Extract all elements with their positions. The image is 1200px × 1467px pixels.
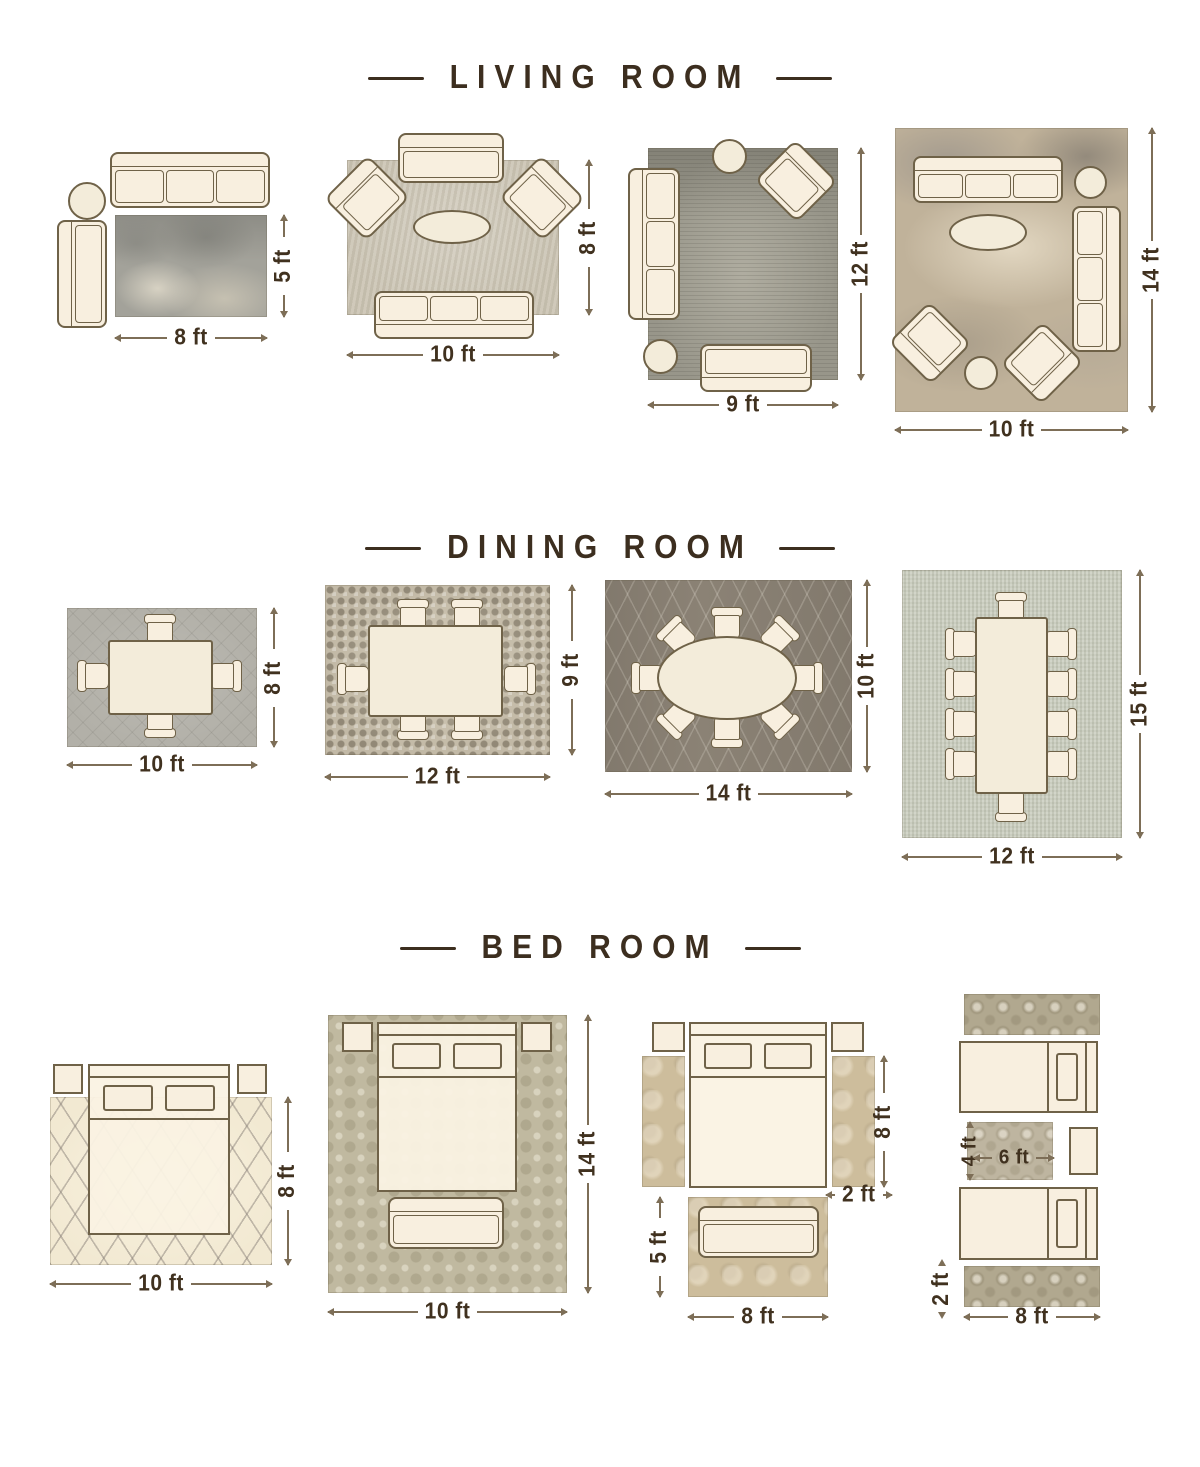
dimension-label: 9 ft <box>726 392 760 418</box>
dimension-label: 2 ft <box>929 1272 955 1306</box>
height-dimension: 10 ft <box>855 580 879 772</box>
ottoman <box>643 339 678 374</box>
sofa-cushion <box>480 296 529 321</box>
sofa-cushion <box>646 173 675 219</box>
loveseat <box>398 133 504 183</box>
headboard <box>90 1066 228 1078</box>
sofa-back <box>112 154 268 167</box>
sofa-cushion <box>965 174 1010 198</box>
pillow <box>103 1085 153 1111</box>
dining-chair <box>945 667 977 701</box>
sofa-cushion <box>430 296 479 321</box>
dimension-label: 8 ft <box>261 661 287 695</box>
height-dimension: 12 ft <box>849 148 873 380</box>
bed <box>689 1022 827 1188</box>
foot-rug-height-dimension: 5 ft <box>648 1197 672 1297</box>
dimension-label: 8 ft <box>741 1304 775 1330</box>
sofa-cushion <box>1077 257 1103 301</box>
mattress <box>961 1189 1049 1258</box>
loveseat <box>700 344 812 392</box>
runner-width-dimension: 8 ft <box>964 1305 1100 1329</box>
dimension-label: 8 ft <box>871 1105 897 1139</box>
dimension-label: 10 ft <box>425 1299 471 1325</box>
sofa-back <box>630 170 643 318</box>
height-dimension: 8 ft <box>262 608 286 747</box>
runner-length-dimension: 8 ft <box>872 1056 896 1187</box>
nightstand <box>652 1022 685 1052</box>
height-dimension: 8 ft <box>276 1097 300 1265</box>
nightstand <box>342 1022 373 1052</box>
section-title-text: DINING ROOM <box>447 529 753 567</box>
height-dimension: 14 ft <box>576 1015 600 1293</box>
sofa-cushion <box>705 349 807 374</box>
dimension-label: 15 ft <box>1127 681 1153 727</box>
rug-size-guide: LIVING ROOM 8 ft 5 ft <box>0 0 1200 1467</box>
dimension-label: 8 ft <box>275 1164 301 1198</box>
runner-rug <box>964 994 1100 1035</box>
dimension-label: 14 ft <box>1139 247 1165 293</box>
sofa-back <box>400 135 502 148</box>
dining-chair <box>1045 707 1077 741</box>
width-dimension: 9 ft <box>648 393 838 417</box>
pillow <box>1056 1053 1078 1102</box>
section-title-living-room: LIVING ROOM <box>0 58 1200 98</box>
round-side-table <box>68 182 106 220</box>
runner-rug <box>832 1056 875 1187</box>
sofa-back <box>1106 208 1119 350</box>
dining-chair <box>337 662 369 696</box>
dimension-label: 10 ft <box>854 653 880 699</box>
dimension-label: 10 ft <box>138 1271 184 1297</box>
sofa-3-seat <box>374 291 534 339</box>
ottoman <box>964 356 998 390</box>
oval-dining-table <box>657 636 797 720</box>
dining-chair <box>710 607 744 639</box>
area-rug <box>115 215 267 317</box>
title-dash <box>745 947 801 950</box>
oval-coffee-table <box>413 210 491 244</box>
dining-chair <box>710 716 744 748</box>
dimension-label: 9 ft <box>559 653 585 687</box>
headboard <box>1087 1043 1096 1111</box>
dimension-label: 8 ft <box>174 325 208 351</box>
round-side-table <box>1074 166 1107 199</box>
width-dimension: 10 ft <box>895 418 1128 442</box>
nightstand <box>831 1022 864 1052</box>
height-dimension: 5 ft <box>272 215 296 317</box>
section-title-text: BED ROOM <box>482 929 719 967</box>
title-dash <box>368 77 424 80</box>
height-dimension: 9 ft <box>560 585 584 755</box>
nightstand <box>521 1022 552 1052</box>
sofa-cushion <box>403 151 499 178</box>
runner-height-dimension: 2 ft <box>930 1260 954 1312</box>
dimension-label: 8 ft <box>576 221 602 255</box>
title-dash <box>400 947 456 950</box>
foot-rug-width-dimension: 8 ft <box>688 1305 828 1329</box>
sofa-cushion <box>75 225 102 323</box>
runner-width-dimension: 2 ft <box>826 1183 902 1207</box>
sofa-cushion <box>646 269 675 315</box>
twin-bed <box>959 1187 1098 1260</box>
height-dimension: 15 ft <box>1128 570 1152 838</box>
sofa-back <box>702 377 810 390</box>
headboard <box>691 1024 825 1036</box>
bench <box>388 1197 504 1249</box>
dining-chair <box>77 659 109 693</box>
section-title-text: LIVING ROOM <box>450 59 751 97</box>
dining-chair <box>1045 627 1077 661</box>
width-dimension: 10 ft <box>347 343 559 367</box>
sofa-3-seat <box>913 156 1063 203</box>
dimension-label: 2 ft <box>842 1182 876 1208</box>
pillow <box>1056 1199 1078 1249</box>
sofa-cushion <box>646 221 675 267</box>
sofa-3-seat <box>110 152 270 208</box>
dimension-label: 5 ft <box>647 1230 673 1264</box>
sofa-back <box>390 1199 502 1212</box>
title-dash <box>776 77 832 80</box>
mattress <box>691 1078 825 1186</box>
width-dimension: 8 ft <box>115 326 267 350</box>
sofa-3-seat <box>628 168 680 320</box>
width-dimension: 12 ft <box>325 765 550 789</box>
pillow <box>704 1043 752 1069</box>
dimension-label: 10 ft <box>139 752 185 778</box>
sofa-cushion <box>216 170 265 203</box>
accent-rug-width-dimension: 6 ft <box>974 1146 1054 1170</box>
oval-coffee-table <box>949 214 1027 251</box>
headboard <box>379 1024 515 1036</box>
runner-rug <box>964 1266 1100 1307</box>
runner-rug <box>642 1056 685 1187</box>
pillow <box>165 1085 215 1111</box>
dining-table <box>975 617 1048 794</box>
nightstand <box>1069 1127 1098 1175</box>
dimension-label: 8 ft <box>1015 1304 1049 1330</box>
sofa-cushion <box>115 170 164 203</box>
dining-table <box>108 640 213 715</box>
dining-chair <box>504 662 536 696</box>
sofa-cushion <box>1013 174 1058 198</box>
chaise-lounge <box>57 220 107 328</box>
width-dimension: 12 ft <box>902 845 1122 869</box>
dining-chair <box>945 747 977 781</box>
sofa-back <box>700 1208 817 1221</box>
sofa-back <box>59 222 72 326</box>
title-dash <box>365 547 421 550</box>
nightstand <box>53 1064 83 1094</box>
dining-chair <box>1045 667 1077 701</box>
round-side-table <box>712 139 747 174</box>
dining-table <box>368 625 503 717</box>
mattress <box>379 1078 515 1190</box>
sofa-cushion <box>703 1224 814 1253</box>
width-dimension: 10 ft <box>50 1272 272 1296</box>
dining-chair <box>994 790 1028 822</box>
pillow <box>764 1043 812 1069</box>
width-dimension: 10 ft <box>328 1300 567 1324</box>
dimension-label: 14 ft <box>706 781 752 807</box>
dining-chair <box>945 627 977 661</box>
sofa-cushion <box>1077 211 1103 255</box>
mattress <box>961 1043 1049 1111</box>
dining-chair <box>1045 747 1077 781</box>
dimension-label: 12 ft <box>848 241 874 287</box>
sofa-back <box>376 324 532 337</box>
bench <box>698 1206 819 1258</box>
twin-bed <box>959 1041 1098 1113</box>
height-dimension: 8 ft <box>577 160 601 315</box>
dimension-label: 10 ft <box>989 417 1035 443</box>
nightstand <box>237 1064 267 1094</box>
pillow <box>392 1043 441 1069</box>
title-dash <box>779 547 835 550</box>
section-title-dining-room: DINING ROOM <box>0 528 1200 568</box>
dimension-label: 14 ft <box>575 1131 601 1177</box>
bed <box>88 1064 230 1235</box>
sofa-cushion <box>379 296 428 321</box>
width-dimension: 10 ft <box>67 753 257 777</box>
dining-chair <box>945 707 977 741</box>
dimension-label: 10 ft <box>430 342 476 368</box>
mattress <box>90 1120 228 1233</box>
headboard <box>1087 1189 1096 1258</box>
sofa-cushion <box>1077 303 1103 347</box>
dining-chair <box>210 659 242 693</box>
height-dimension: 14 ft <box>1140 128 1164 412</box>
dimension-label: 12 ft <box>989 844 1035 870</box>
sofa-cushion <box>166 170 215 203</box>
bed <box>377 1022 517 1192</box>
section-title-bed-room: BED ROOM <box>0 928 1200 968</box>
sofa-back <box>915 158 1061 171</box>
sofa-3-seat <box>1072 206 1121 352</box>
sofa-cushion <box>918 174 963 198</box>
pillow <box>453 1043 502 1069</box>
sofa-cushion <box>393 1215 499 1244</box>
dimension-label: 5 ft <box>271 249 297 283</box>
width-dimension: 14 ft <box>605 782 852 806</box>
dimension-label: 12 ft <box>415 764 461 790</box>
dimension-label: 6 ft <box>999 1146 1030 1170</box>
